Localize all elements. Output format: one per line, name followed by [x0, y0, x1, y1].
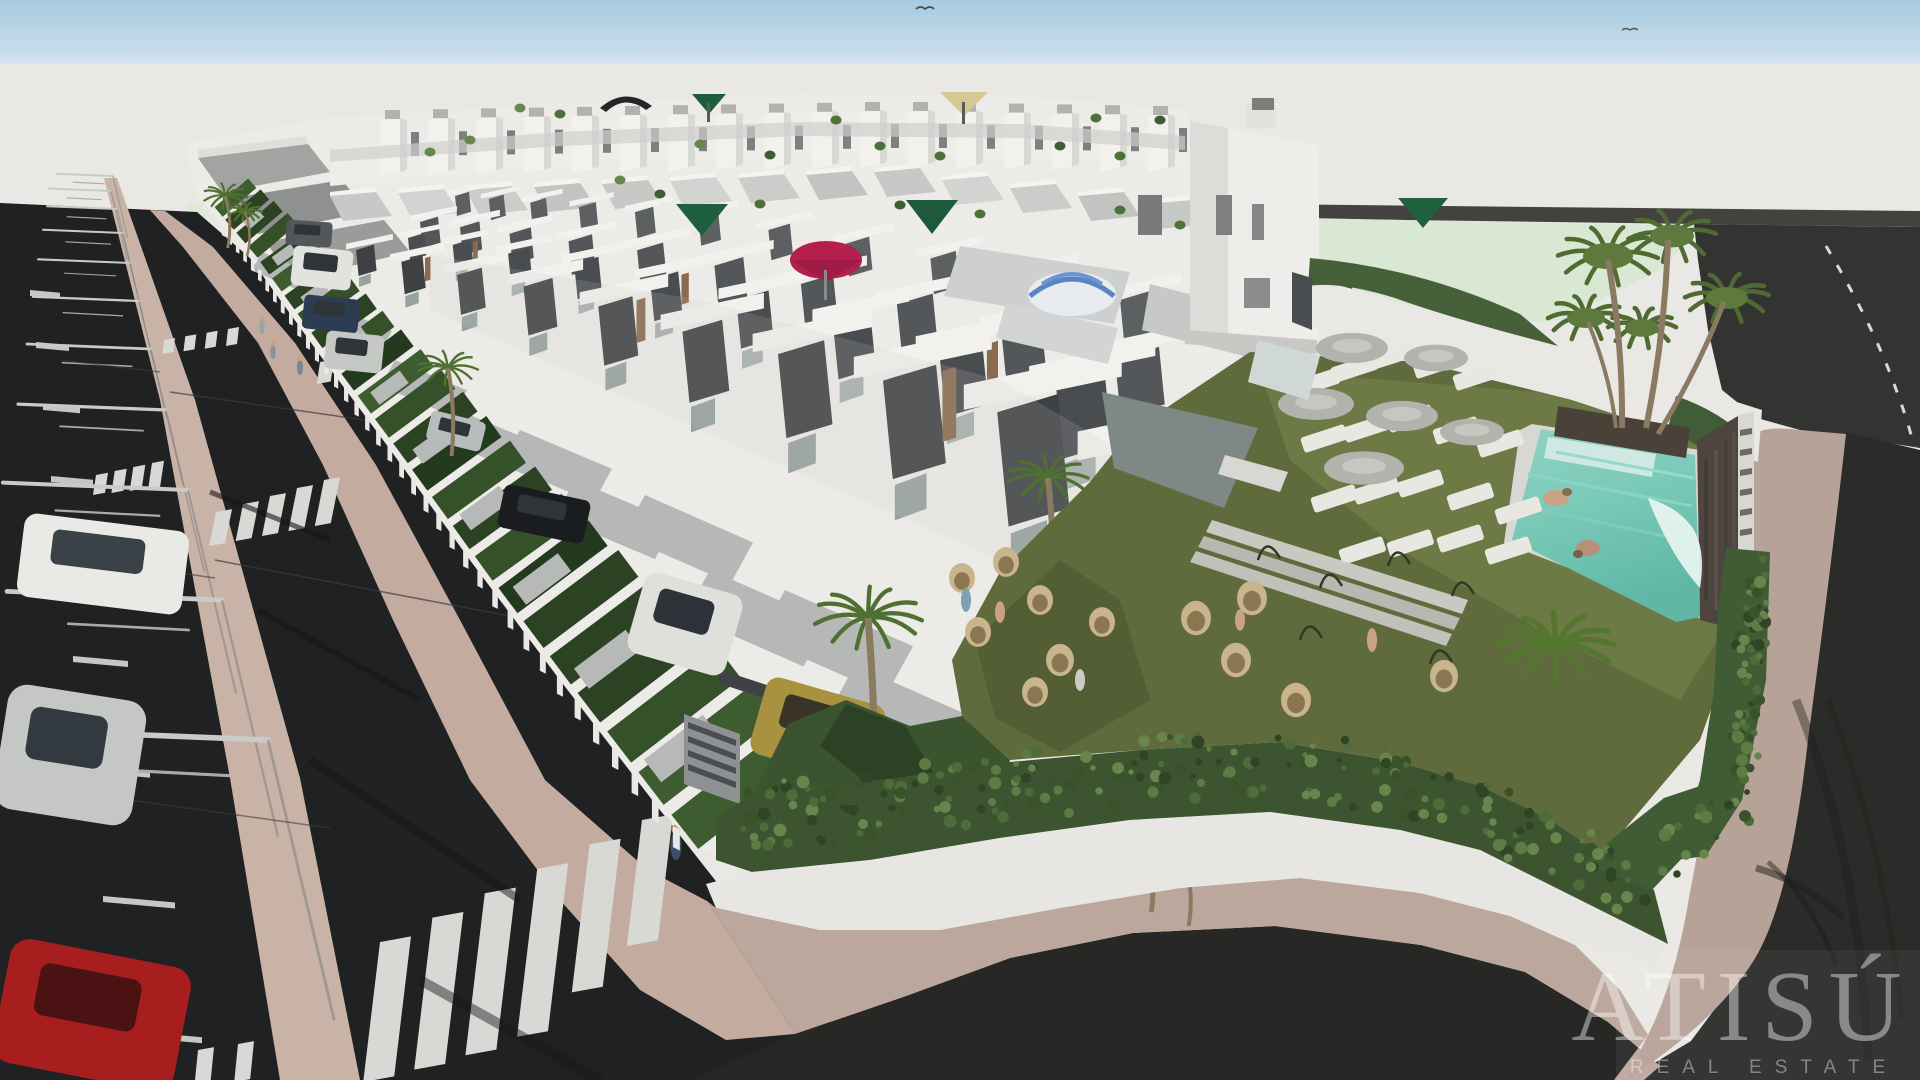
- svg-text:ATISÚ: ATISÚ: [1571, 950, 1912, 1062]
- svg-text:REAL ESTATE: REAL ESTATE: [1630, 1057, 1898, 1078]
